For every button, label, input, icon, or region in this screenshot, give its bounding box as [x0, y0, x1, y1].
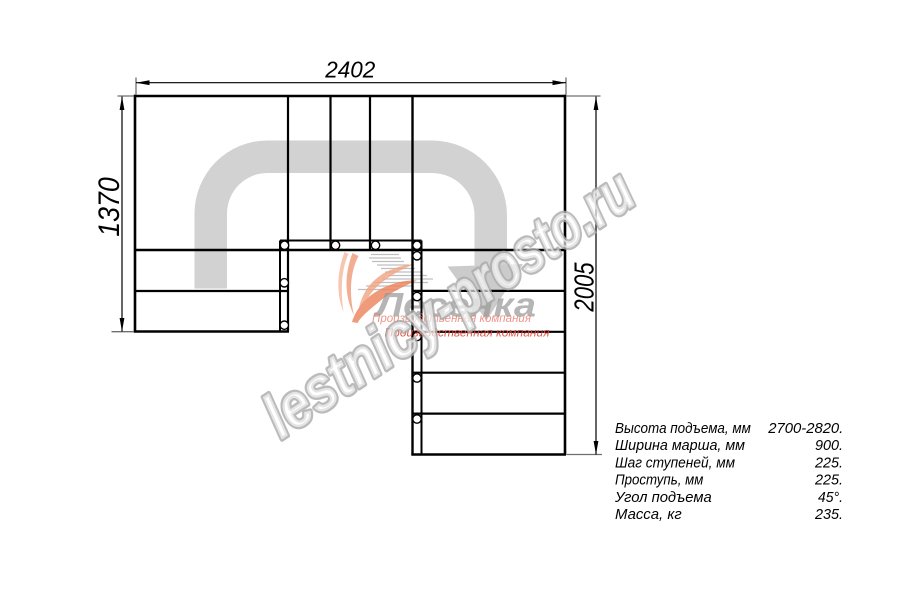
svg-text:235.: 235.: [814, 506, 843, 523]
svg-text:2402: 2402: [324, 56, 375, 82]
svg-text:Масса, кг: Масса, кг: [615, 506, 682, 523]
svg-text:900.: 900.: [815, 437, 843, 454]
svg-text:Шаг ступеней, мм: Шаг ступеней, мм: [615, 454, 735, 471]
svg-text:225.: 225.: [814, 454, 843, 471]
svg-text:1370: 1370: [93, 177, 126, 237]
svg-text:Высота подъема, мм: Высота подъема, мм: [615, 420, 751, 437]
svg-text:2005: 2005: [568, 262, 599, 313]
svg-text:Угол подъема: Угол подъема: [614, 489, 712, 506]
svg-text:45°.: 45°.: [818, 489, 843, 506]
svg-text:Проступь, мм: Проступь, мм: [615, 472, 703, 489]
svg-text:225.: 225.: [814, 472, 843, 489]
svg-text:Ширина марша, мм: Ширина марша, мм: [615, 437, 745, 454]
svg-text:2700-2820.: 2700-2820.: [767, 420, 843, 437]
